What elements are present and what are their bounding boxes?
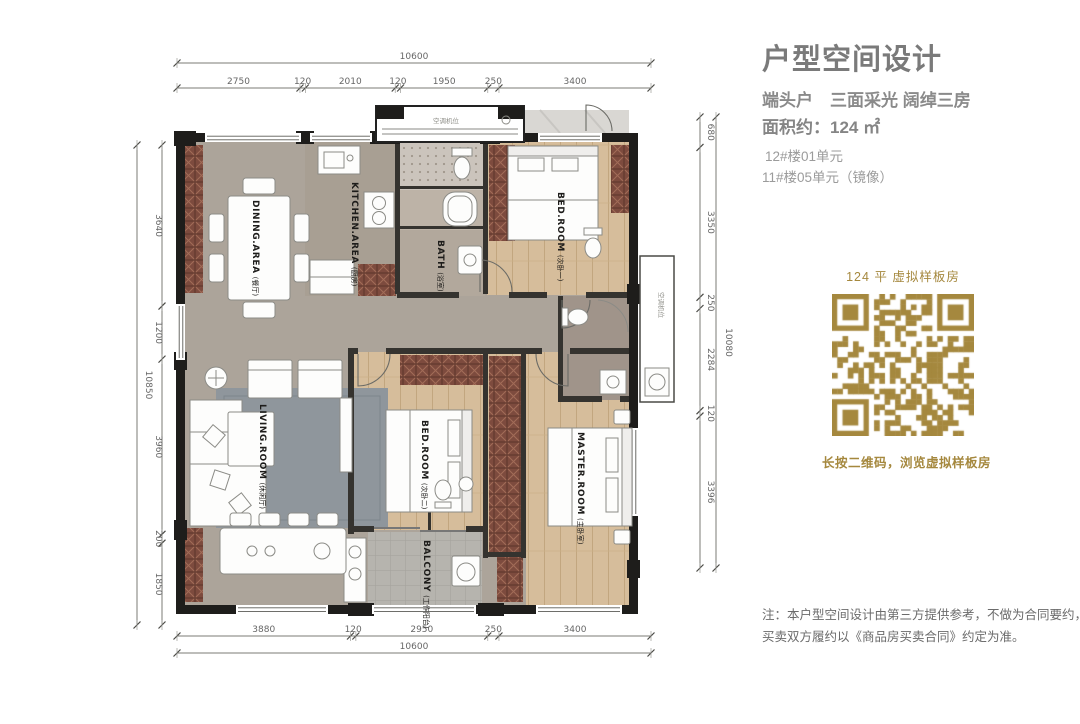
unit-line-2: 11#楼05单元（镜像） <box>762 166 893 186</box>
dimension-value: 2750 <box>227 77 250 87</box>
window-bottom-left <box>236 605 328 614</box>
page-title: 户型空间设计 <box>762 36 942 78</box>
dimension-value: 1850 <box>153 573 163 596</box>
dimension-value: 250 <box>705 294 715 311</box>
subtitle: 端头户 三面采光 阔绰三房 <box>762 86 971 111</box>
window-bedroom1 <box>538 133 602 142</box>
dimension-value: 200 <box>153 530 163 547</box>
dimension-value: 3400 <box>564 625 587 635</box>
dimension-value: 3350 <box>705 211 715 234</box>
dimension-chain: 10600388012029502503400 <box>174 625 655 658</box>
dimension-value: 250 <box>485 77 502 87</box>
dimension-value: 120 <box>705 405 715 422</box>
unit-line-1: 12#楼01单元 <box>765 145 843 165</box>
dimension-value: 3880 <box>252 625 275 635</box>
room-label-bedroom2: BED.ROOM(次卧二) <box>419 420 429 510</box>
disclaimer-line-2: 买卖双方履约以《商品房买卖合同》约定为准。 <box>762 626 1080 648</box>
dimension-value: 10080 <box>723 328 733 357</box>
disclaimer-note: 注：本户型空间设计由第三方提供参考，不做为合同要约， 买卖双方履约以《商品房买卖… <box>762 604 1080 648</box>
dimension-value: 1200 <box>153 321 163 344</box>
dimension-value: 120 <box>389 77 406 87</box>
qr-caption-bottom: 长按二维码，浏览虚拟样板房 <box>822 452 991 471</box>
area-label: 面积约：124 ㎡ <box>762 113 880 138</box>
window-kitchen <box>310 133 372 142</box>
dimension-value: 3960 <box>153 435 163 458</box>
ac-platform-top: 空调机位 <box>376 106 524 142</box>
ac-niche-label: 空调机位 <box>657 292 666 319</box>
window-left <box>176 304 185 360</box>
dimension-value: 3400 <box>564 77 587 87</box>
room-label-bedroom1: BED.ROOM(次卧一) <box>555 192 565 282</box>
room-label-dining: DINING.AREA(餐厅) <box>250 200 260 296</box>
dimension-value: 2950 <box>410 625 433 635</box>
dimension-value: 2010 <box>339 77 362 87</box>
dimension-value: 3396 <box>705 481 715 504</box>
ac-platform-label: 空调机位 <box>433 116 460 125</box>
room-label-balcony: BALCONY(工作阳台) <box>421 540 431 629</box>
window-dining <box>205 133 301 142</box>
room-label-kitchen: KITCHEN.AREA(厨房) <box>349 182 359 287</box>
window-master <box>536 605 622 614</box>
qr-code[interactable] <box>832 294 974 436</box>
dimension-value: 2284 <box>705 348 715 371</box>
room-label-bath: BATH(浴室) <box>435 240 445 292</box>
dimension-value: 120 <box>345 625 362 635</box>
room-label-living: LIVING.ROOM(休闲厅) <box>257 404 267 509</box>
dimension-value: 680 <box>705 124 715 141</box>
dimension-value: 3640 <box>153 214 163 237</box>
dimension-chain: 106002750120201012019502503400 <box>174 52 655 93</box>
dimension-value: 10600 <box>400 52 429 62</box>
corridor-floor <box>524 110 629 133</box>
floor-plan: 空调机位 空调机位 <box>110 30 760 670</box>
dimension-value: 250 <box>485 625 502 635</box>
dimension-value: 10600 <box>400 642 429 652</box>
dimension-chain: 108503640120039602001850 <box>134 140 166 630</box>
dimension-chain: 10080680335025022841203396 <box>697 112 734 573</box>
dimension-value: 10850 <box>143 371 153 400</box>
ac-niche-right: 空调机位 <box>640 256 674 402</box>
dimension-value: 1950 <box>433 77 456 87</box>
disclaimer-line-1: 注：本户型空间设计由第三方提供参考，不做为合同要约， <box>762 604 1080 626</box>
room-label-master: MASTER.ROOM(主卧室) <box>575 432 585 545</box>
qr-caption-top: 124 平 虚拟样板房 <box>832 266 974 285</box>
master-bed <box>548 410 632 544</box>
tv-cabinet <box>340 398 352 472</box>
dimension-value: 120 <box>294 77 311 87</box>
